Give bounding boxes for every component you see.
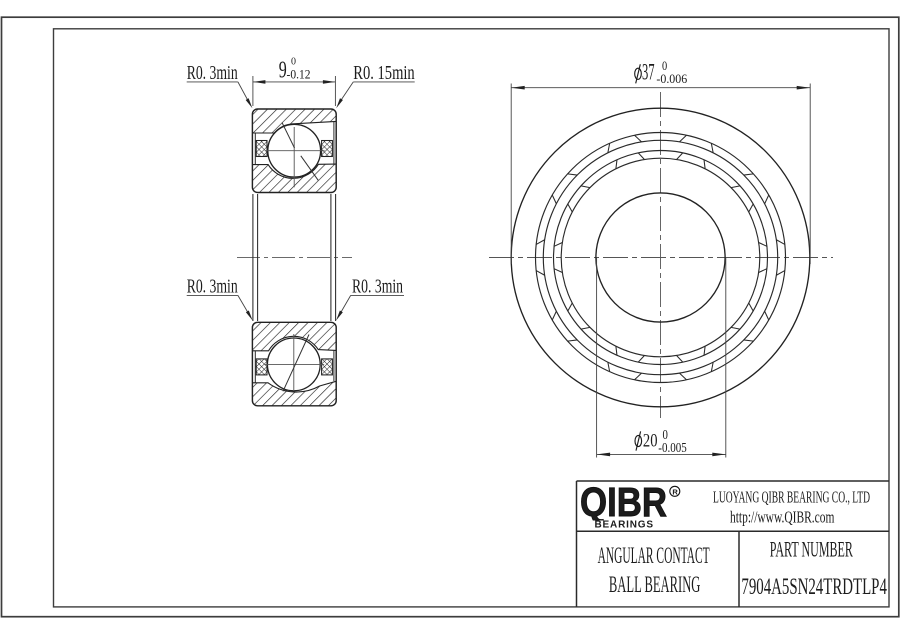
svg-text:0: 0 xyxy=(291,55,296,67)
svg-text:ANGULAR CONTACT: ANGULAR CONTACT xyxy=(598,543,710,569)
svg-text:R: R xyxy=(672,487,678,496)
svg-text:BALL BEARING: BALL BEARING xyxy=(609,572,701,598)
svg-text:R0. 15min: R0. 15min xyxy=(353,62,414,84)
svg-text:9: 9 xyxy=(279,58,287,84)
svg-text:20: 20 xyxy=(643,431,658,452)
svg-text:LUOYANG QIBR BEARING CO., LTD: LUOYANG QIBR BEARING CO., LTD xyxy=(713,487,870,506)
svg-text:R0. 3min: R0. 3min xyxy=(352,276,403,298)
svg-text:R0. 3min: R0. 3min xyxy=(187,276,238,298)
svg-text:37: 37 xyxy=(642,59,655,84)
svg-text:-0.006: -0.006 xyxy=(656,71,687,86)
svg-text:BEARINGS: BEARINGS xyxy=(595,520,654,531)
svg-text:7904A5SN24TRDTLP4: 7904A5SN24TRDTLP4 xyxy=(741,574,887,600)
svg-text:QIBR: QIBR xyxy=(580,479,667,525)
svg-text:R0. 3min: R0. 3min xyxy=(187,62,238,84)
svg-text:http://www.QIBR.com: http://www.QIBR.com xyxy=(730,507,835,526)
svg-text:-0.005: -0.005 xyxy=(658,441,686,456)
svg-text:-0.12: -0.12 xyxy=(287,68,311,82)
svg-text:PART NUMBER: PART NUMBER xyxy=(770,537,853,562)
